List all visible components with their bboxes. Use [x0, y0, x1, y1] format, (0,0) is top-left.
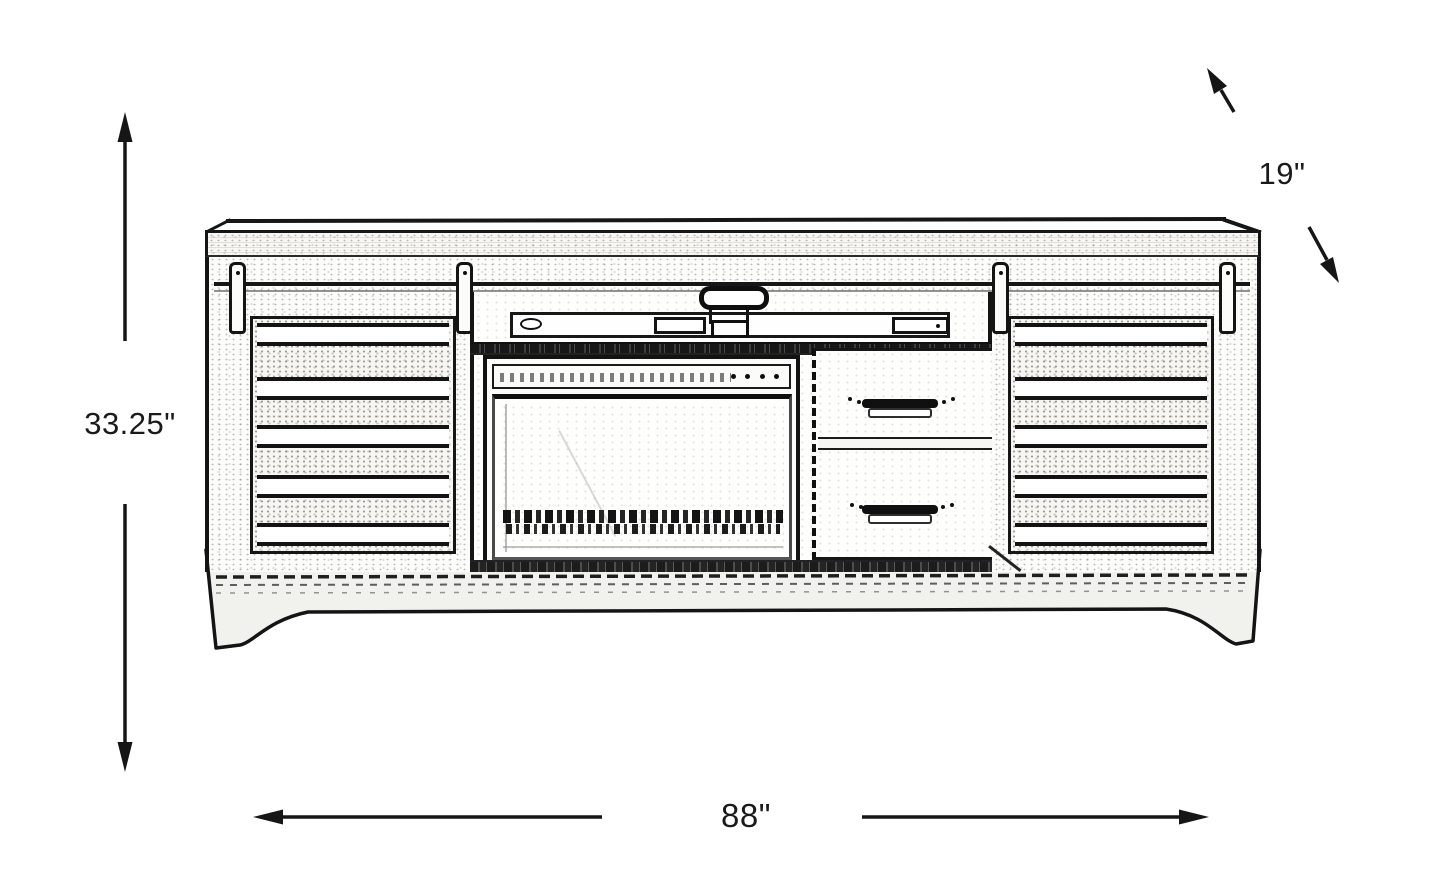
width-dimension-label: 88" — [676, 799, 816, 832]
height-dimension-label: 33.25" — [60, 408, 200, 439]
product-dimension-diagram: 33.25" 88" 19" — [0, 0, 1440, 880]
console-base — [0, 0, 1440, 880]
depth-dimension-label: 19" — [1222, 158, 1342, 189]
